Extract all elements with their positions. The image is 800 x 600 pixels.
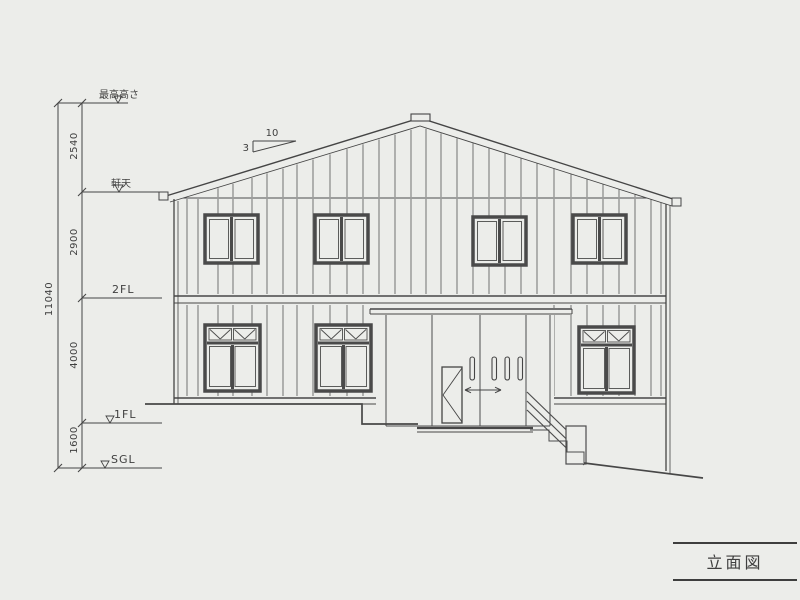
lower-window-1 (205, 325, 260, 391)
left-eave-cap (159, 192, 168, 200)
level-label-1fl: 1FL (114, 408, 136, 421)
entrance-door (442, 367, 462, 423)
upper-window-1 (205, 215, 258, 263)
level-label-max-height: 最高高さ (99, 88, 139, 101)
roof-slope-indicator: 10 3 (243, 128, 296, 154)
level-label-eave: 軒天 (111, 178, 131, 190)
elevation-drawing: 最高高さ 軒天 2FL 1FL SGL 11040 2540 2900 4000… (0, 0, 800, 600)
dim-segment-2: 2900 (69, 228, 80, 255)
dimension-assembly: 最高高さ 軒天 2FL 1FL SGL 11040 2540 2900 4000… (44, 88, 162, 472)
stair-newel (566, 426, 586, 464)
dim-segment-1: 2540 (69, 132, 80, 159)
slope-rise-label: 3 (243, 143, 249, 154)
title-block: 立面図 (673, 543, 797, 580)
right-eave-cap (672, 198, 681, 206)
dim-segment-4: 1600 (69, 426, 80, 453)
drawing-title: 立面図 (706, 553, 763, 572)
level-label-sgl: SGL (111, 453, 136, 466)
dim-segment-3: 4000 (69, 341, 80, 368)
ground-slope (584, 463, 703, 478)
slope-run-label: 10 (266, 128, 279, 139)
ridge-cap (411, 114, 430, 121)
upper-window-4 (573, 215, 626, 263)
second-floor-band (172, 294, 668, 305)
dim-overall: 11040 (44, 282, 55, 316)
entrance-platform (417, 427, 533, 433)
entrance (370, 308, 572, 433)
level-label-2fl: 2FL (112, 283, 134, 296)
lower-window-2 (316, 325, 371, 391)
upper-window-3 (473, 217, 526, 265)
upper-window-2 (315, 215, 368, 263)
lower-window-3 (579, 327, 634, 393)
